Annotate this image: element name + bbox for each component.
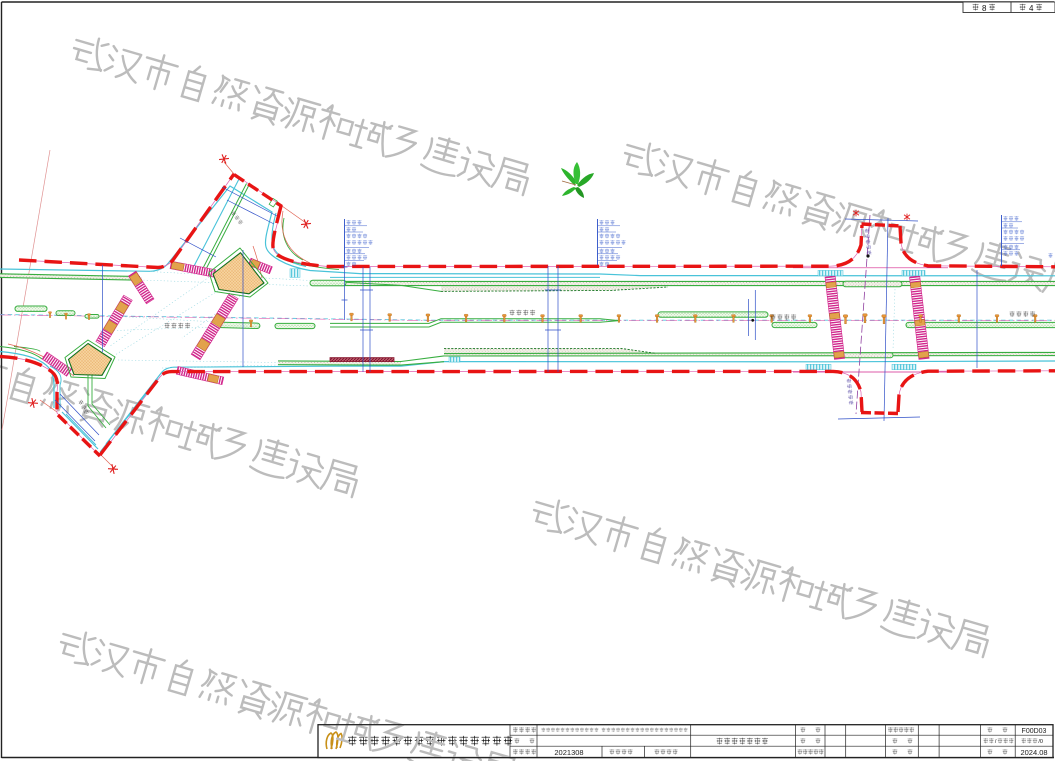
svg-text:/0: /0 [1038, 739, 1043, 745]
svg-text:4: 4 [1029, 4, 1034, 13]
svg-text:2021308: 2021308 [554, 748, 583, 757]
svg-text:8: 8 [982, 4, 987, 13]
svg-text:2024.08: 2024.08 [1020, 748, 1047, 757]
svg-text:F00D03: F00D03 [1022, 728, 1047, 735]
